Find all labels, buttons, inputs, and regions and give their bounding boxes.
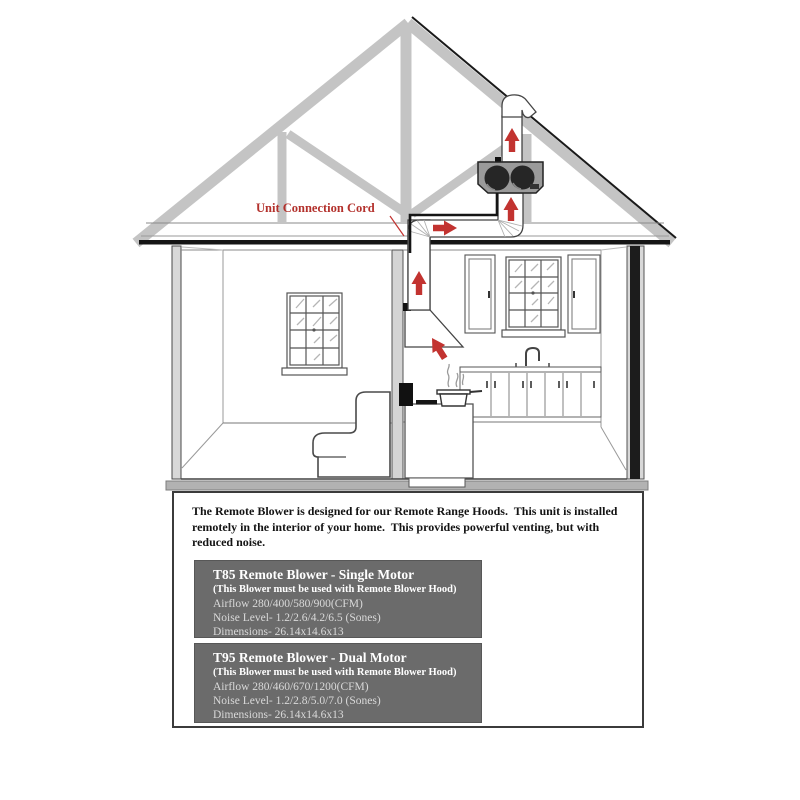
cord-outlet (399, 383, 413, 406)
product-noise-level: Noise Level- 1.2/2.6/4.2/6.5 (Sones) (213, 611, 481, 625)
sink-faucet (516, 348, 549, 367)
product-airflow: Airflow 280/460/670/1200(CFM) (213, 680, 481, 694)
living-room-window (282, 293, 347, 375)
blower-label-plate (530, 184, 539, 189)
product-requirement: (This Blower must be used with Remote Bl… (213, 583, 481, 597)
roof-cap (502, 95, 536, 118)
remote-blower-infographic: Unit Connection Cord The Remote Blower i… (0, 0, 800, 800)
description-line-2: remotely in the interior of your home. T… (192, 520, 617, 536)
product-noise-level: Noise Level- 1.2/2.8/5.0/7.0 (Sones) (213, 694, 481, 708)
product-dimensions: Dimensions- 26.14x14.6x13 (213, 625, 481, 639)
foundation-band (166, 481, 648, 490)
eave-band (139, 223, 670, 245)
product-title: T95 Remote Blower - Dual Motor (213, 650, 481, 666)
right-wall (627, 246, 644, 479)
product-card-t85: T85 Remote Blower - Single Motor (This B… (194, 560, 482, 638)
product-title: T85 Remote Blower - Single Motor (213, 567, 481, 583)
description-paragraph: The Remote Blower is designed for our Re… (192, 504, 617, 551)
product-airflow: Airflow 280/400/580/900(CFM) (213, 597, 481, 611)
unit-connection-cord-label: Unit Connection Cord (256, 201, 406, 216)
product-card-t95: T95 Remote Blower - Dual Motor (This Blo… (194, 643, 482, 723)
range-island (405, 400, 473, 487)
description-line-1: The Remote Blower is designed for our Re… (192, 504, 617, 520)
sofa (313, 392, 390, 477)
divider-wall (392, 250, 403, 479)
kitchen-window (502, 257, 565, 337)
description-line-3: reduced noise. (192, 535, 617, 551)
cooktop-strip (416, 400, 437, 405)
left-wall (172, 246, 181, 479)
blower-unit (478, 157, 543, 193)
product-requirement: (This Blower must be used with Remote Bl… (213, 666, 481, 680)
info-panel: The Remote Blower is designed for our Re… (172, 491, 644, 728)
roof-edge-line (412, 17, 676, 238)
product-dimensions: Dimensions- 26.14x14.6x13 (213, 708, 481, 722)
